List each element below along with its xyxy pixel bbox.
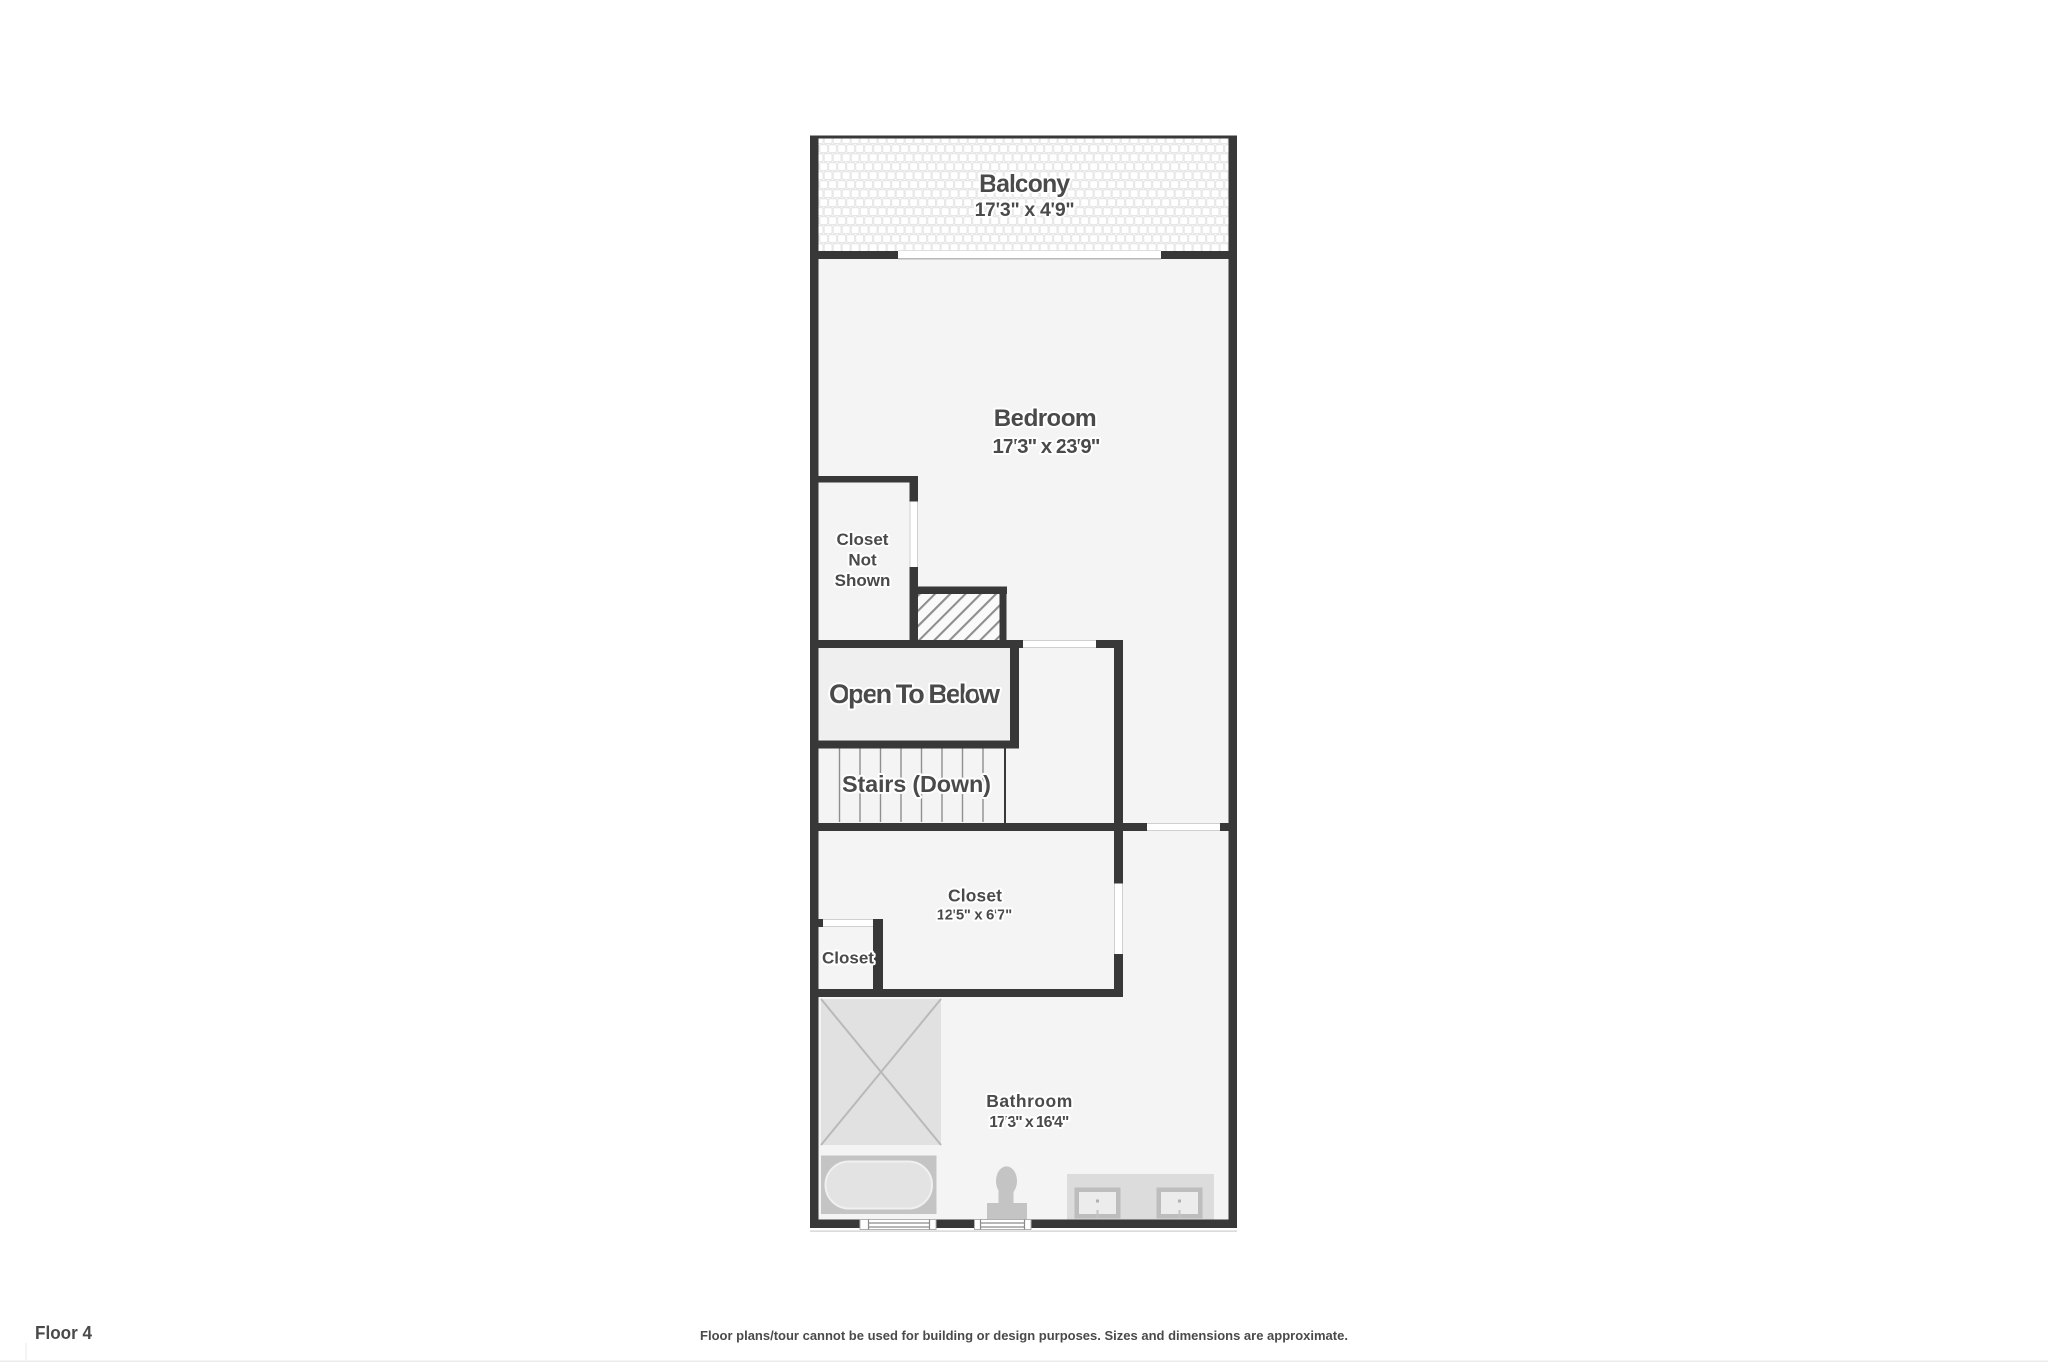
svg-text:Stairs (Down): Stairs (Down): [842, 771, 991, 797]
svg-text:Floor plans/tour cannot be use: Floor plans/tour cannot be used for buil…: [700, 1328, 1348, 1343]
svg-text:Closet: Closet: [837, 530, 889, 549]
svg-text:Floor 4: Floor 4: [35, 1323, 92, 1343]
svg-text:17'3" x 4'9": 17'3" x 4'9": [975, 199, 1075, 221]
svg-text:12'5" x 6'7": 12'5" x 6'7": [937, 907, 1013, 924]
svg-text:Bathroom: Bathroom: [986, 1091, 1072, 1111]
svg-text:Closet: Closet: [822, 949, 874, 968]
svg-text:Shown: Shown: [835, 571, 891, 590]
svg-text:Open To Below: Open To Below: [829, 679, 1001, 709]
svg-text:Balcony: Balcony: [979, 170, 1070, 198]
svg-text:17'3" x 16'4": 17'3" x 16'4": [989, 1114, 1069, 1131]
svg-text:Bedroom: Bedroom: [994, 405, 1097, 432]
svg-text:17'3" x 23'9": 17'3" x 23'9": [993, 435, 1101, 458]
svg-text:Closet: Closet: [948, 886, 1002, 906]
svg-text:Not: Not: [848, 551, 877, 570]
